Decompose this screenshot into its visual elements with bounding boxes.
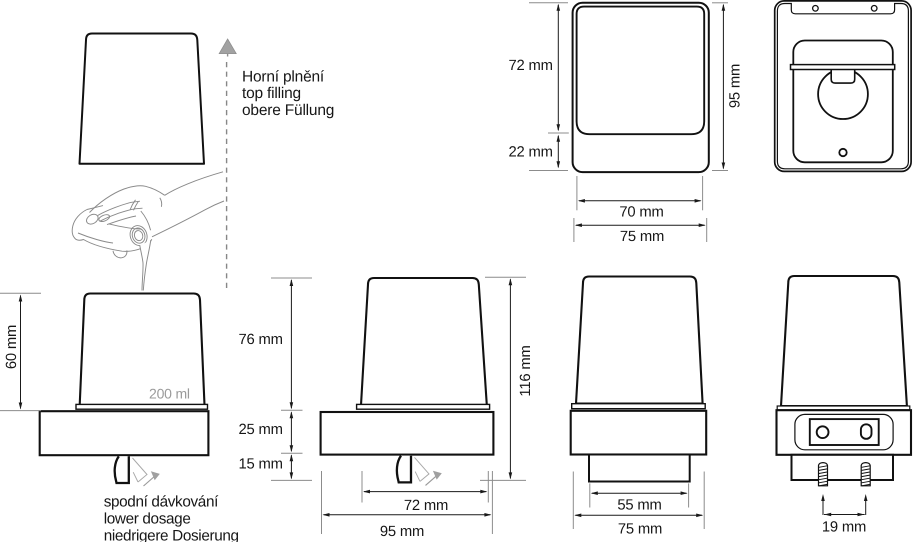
svg-text:22 mm: 22 mm xyxy=(509,145,553,161)
svg-text:75 mm: 75 mm xyxy=(620,229,664,245)
svg-text:70 mm: 70 mm xyxy=(619,205,663,221)
svg-text:25 mm: 25 mm xyxy=(239,422,283,438)
svg-text:116 mm: 116 mm xyxy=(518,345,534,396)
svg-text:75 mm: 75 mm xyxy=(618,522,662,538)
svg-text:200 ml: 200 ml xyxy=(149,386,190,402)
svg-text:95 mm: 95 mm xyxy=(380,524,424,540)
svg-text:76 mm: 76 mm xyxy=(239,332,283,348)
svg-text:55 mm: 55 mm xyxy=(617,498,661,514)
svg-text:niedrigere Dosierung: niedrigere Dosierung xyxy=(104,527,239,542)
svg-text:lower dosage: lower dosage xyxy=(104,510,191,527)
svg-text:72 mm: 72 mm xyxy=(404,498,448,514)
svg-text:72 mm: 72 mm xyxy=(509,58,553,74)
svg-text:obere Füllung: obere Füllung xyxy=(242,102,334,119)
svg-text:95 mm: 95 mm xyxy=(728,64,744,108)
svg-text:15 mm: 15 mm xyxy=(239,457,283,473)
svg-text:top filling: top filling xyxy=(242,85,301,102)
svg-text:spodní dávkování: spodní dávkování xyxy=(104,494,219,511)
svg-text:60 mm: 60 mm xyxy=(4,325,20,369)
svg-text:Horní plnění: Horní plnění xyxy=(242,69,325,86)
svg-text:19 mm: 19 mm xyxy=(822,520,866,536)
